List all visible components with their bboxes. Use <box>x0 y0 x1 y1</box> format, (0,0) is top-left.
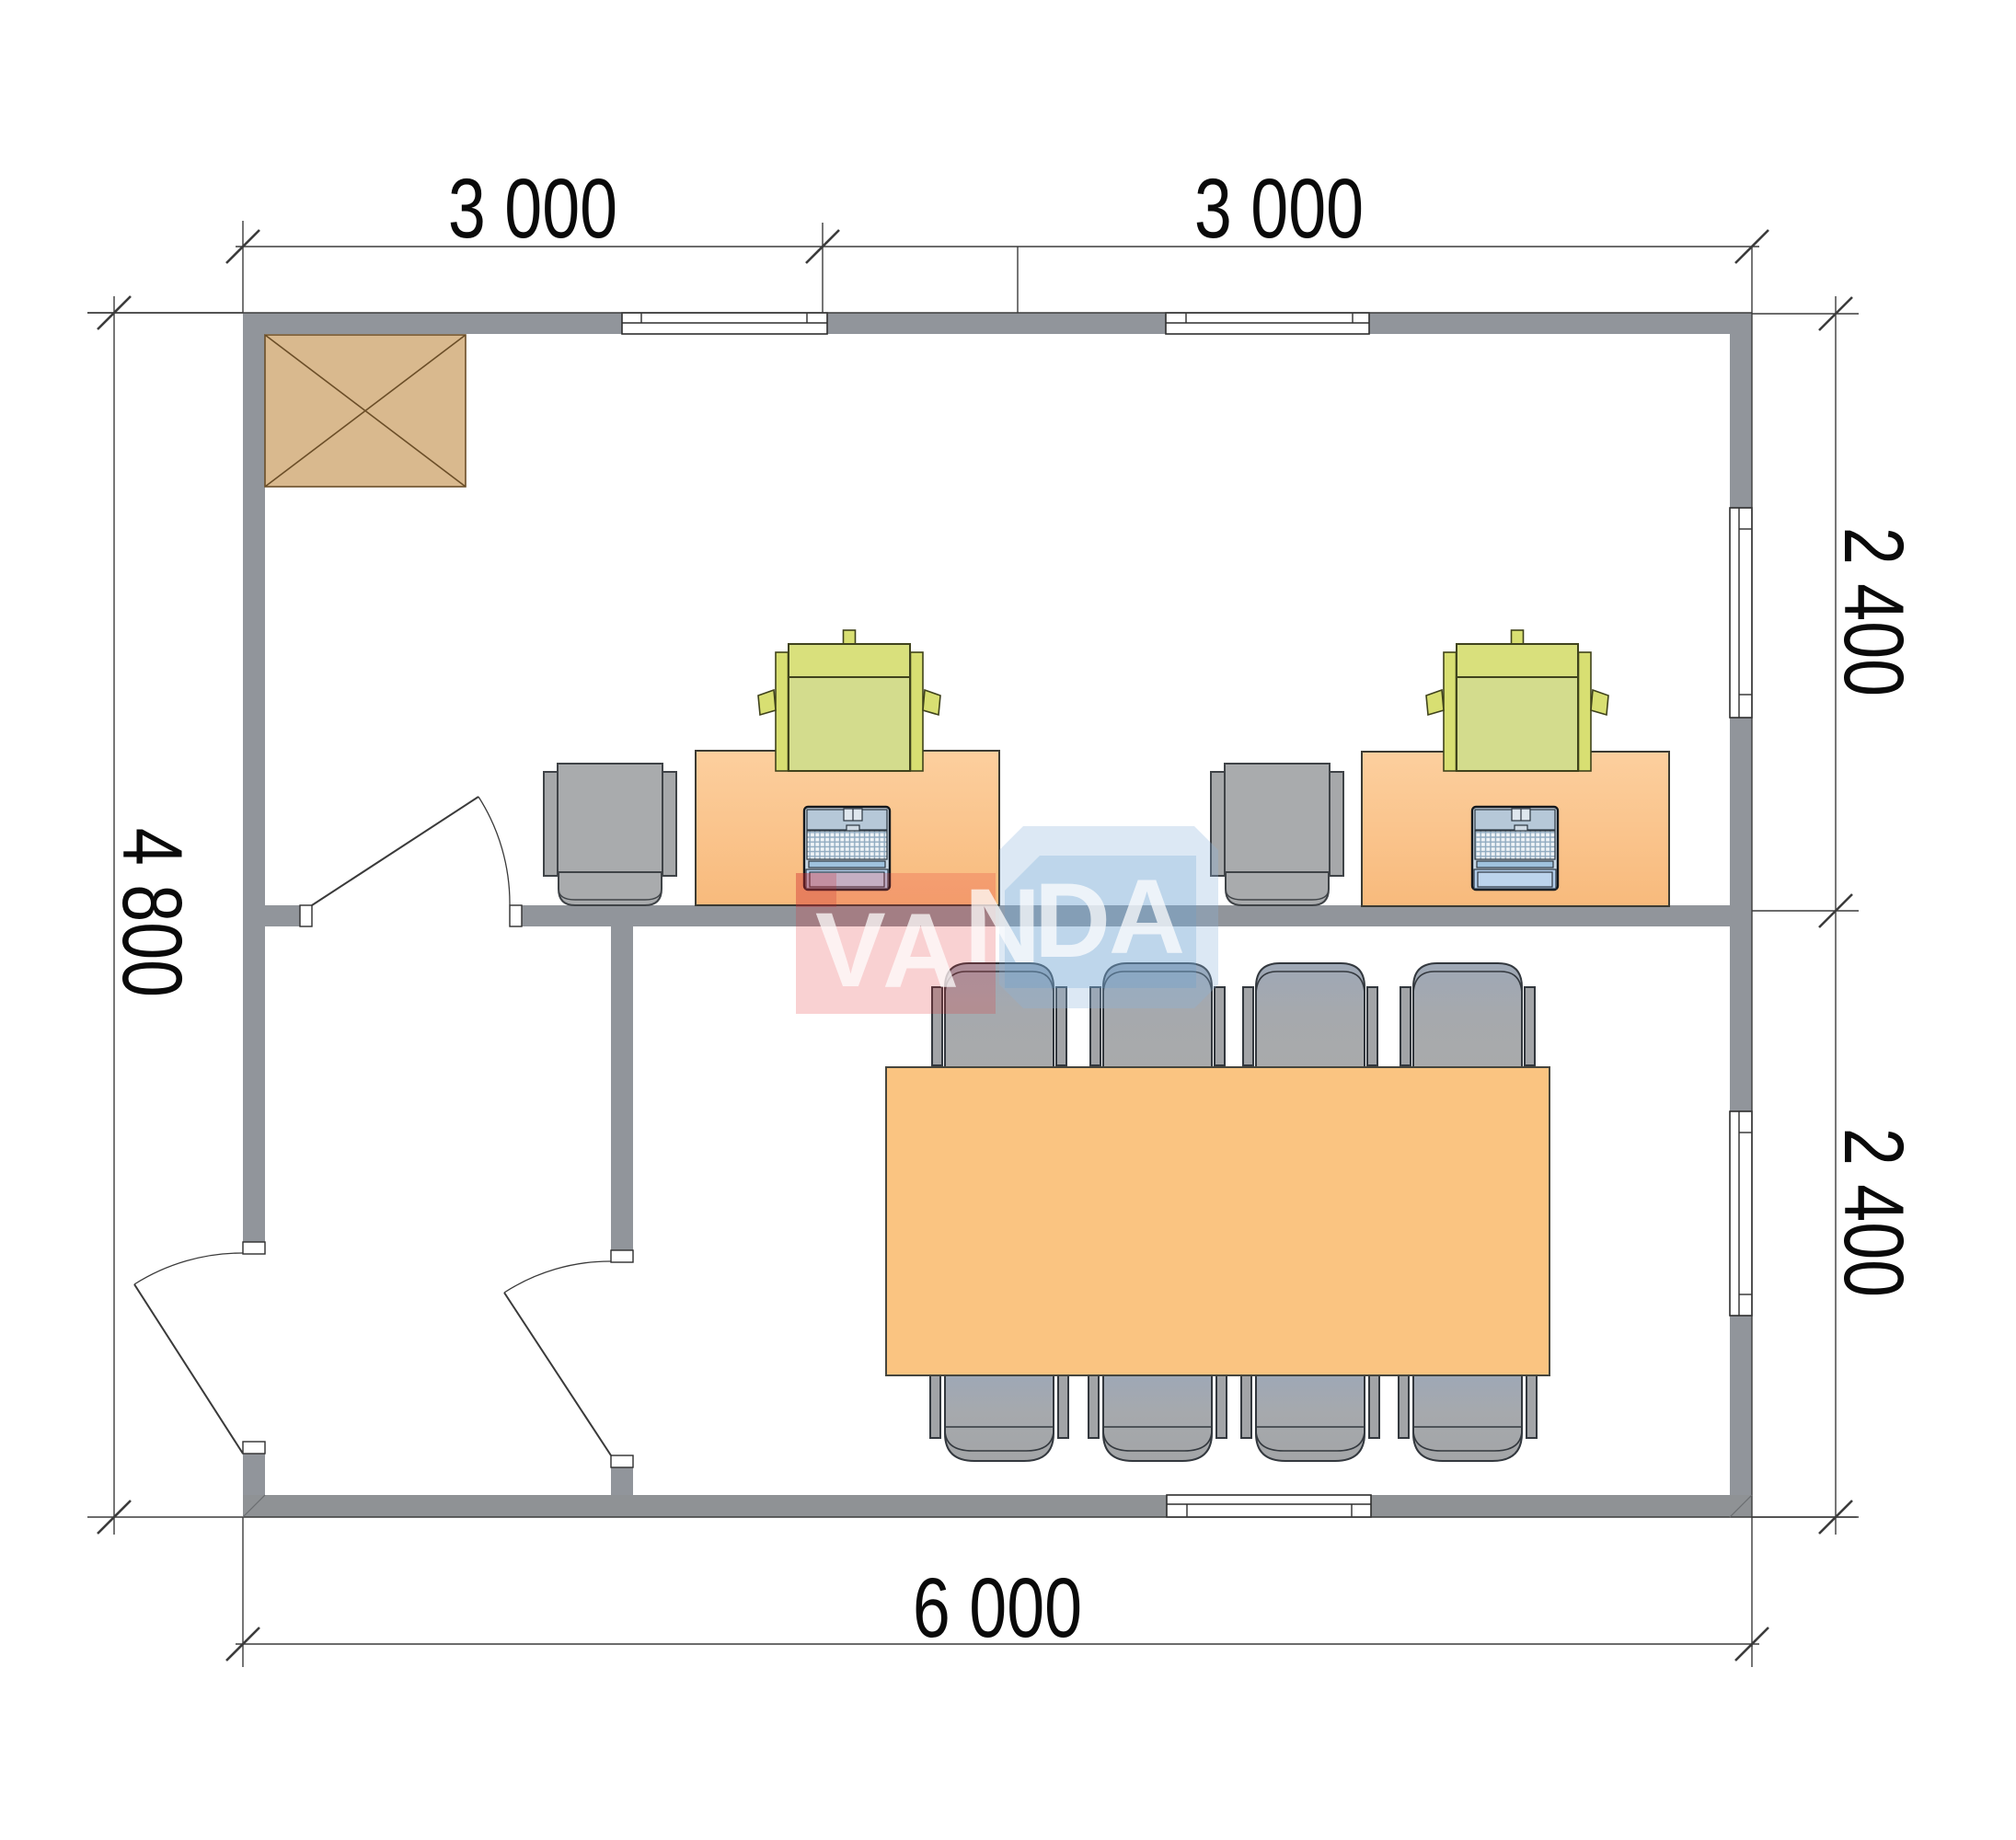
svg-text:3 000: 3 000 <box>448 161 617 256</box>
svg-text:3 000: 3 000 <box>1194 161 1364 256</box>
svg-text:A: A <box>882 892 959 1010</box>
svg-text:2 400: 2 400 <box>1826 1128 1921 1297</box>
svg-text:6 000: 6 000 <box>913 1560 1082 1655</box>
svg-text:N: N <box>964 868 1041 985</box>
svg-text:4 800: 4 800 <box>105 828 200 997</box>
svg-text:A: A <box>1109 858 1185 976</box>
svg-text:D: D <box>1034 862 1111 980</box>
svg-text:V: V <box>815 891 886 1009</box>
svg-text:2 400: 2 400 <box>1826 527 1921 696</box>
